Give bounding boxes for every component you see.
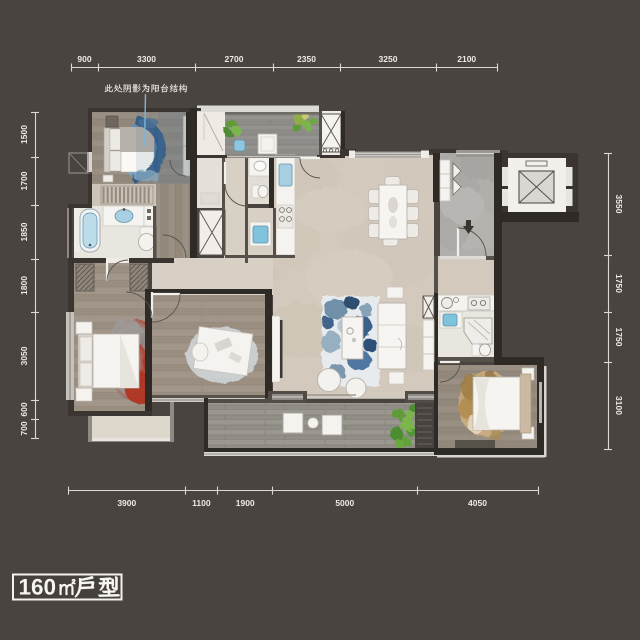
svg-text:1700: 1700 — [19, 171, 29, 190]
svg-text:1500: 1500 — [19, 125, 29, 144]
svg-text:2350: 2350 — [297, 54, 316, 64]
svg-text:3100: 3100 — [614, 396, 624, 415]
svg-text:5000: 5000 — [335, 498, 354, 508]
svg-text:1750: 1750 — [614, 274, 624, 293]
svg-text:3050: 3050 — [19, 346, 29, 365]
svg-text:2700: 2700 — [225, 54, 244, 64]
svg-text:3300: 3300 — [137, 54, 156, 64]
svg-text:1800: 1800 — [19, 276, 29, 295]
svg-text:3250: 3250 — [379, 54, 398, 64]
svg-text:3900: 3900 — [117, 498, 136, 508]
svg-text:3550: 3550 — [614, 195, 624, 214]
svg-text:1750: 1750 — [614, 328, 624, 347]
svg-text:1900: 1900 — [236, 498, 255, 508]
svg-text:1100: 1100 — [192, 498, 211, 508]
svg-text:1850: 1850 — [19, 222, 29, 241]
svg-text:2100: 2100 — [457, 54, 476, 64]
svg-text:600: 600 — [19, 402, 29, 416]
svg-text:4050: 4050 — [468, 498, 487, 508]
svg-text:700: 700 — [19, 421, 29, 435]
svg-text:900: 900 — [77, 54, 91, 64]
